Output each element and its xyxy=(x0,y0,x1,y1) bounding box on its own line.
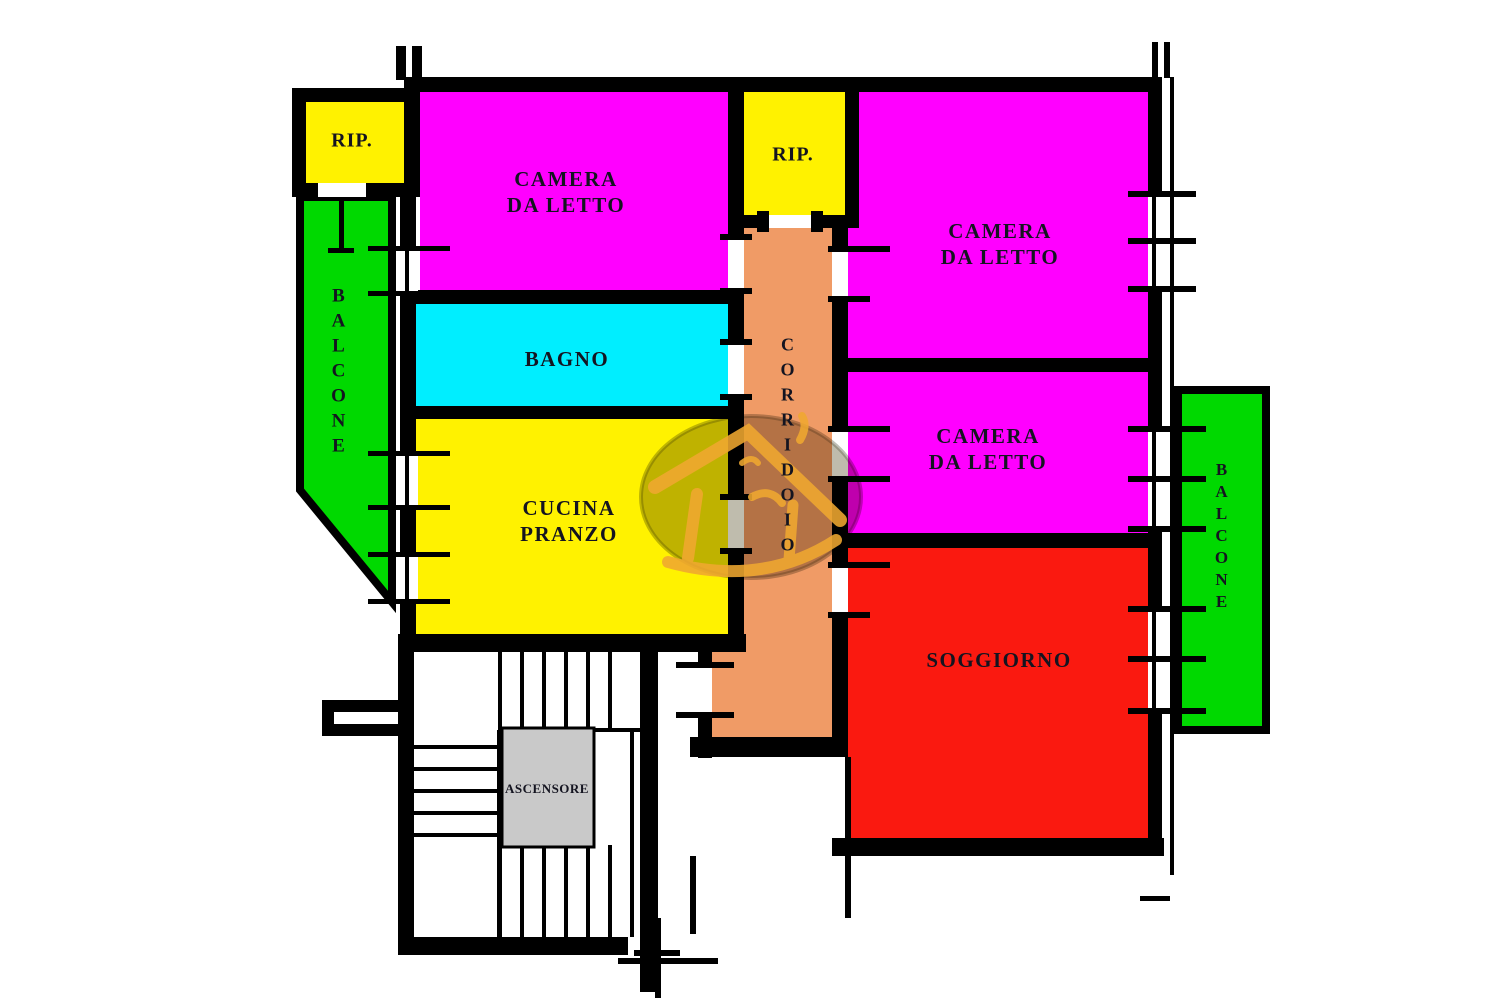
floor-plan: RIP. CAMERA DA LETTO BAGNO CUCINA PRANZO… xyxy=(0,0,1500,1000)
agency-watermark-house-icon xyxy=(0,0,1500,1000)
